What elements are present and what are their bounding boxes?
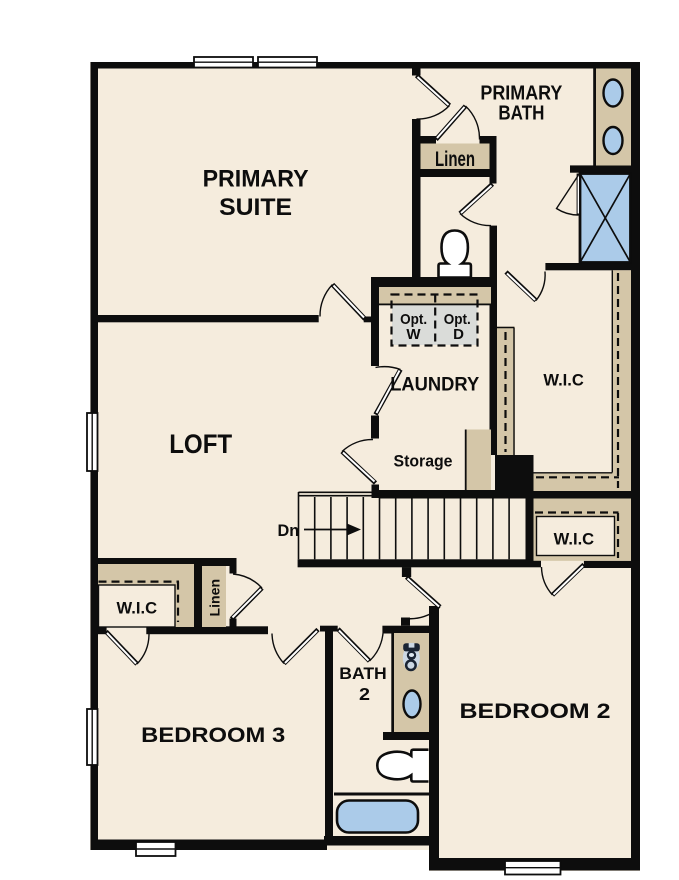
svg-text:W: W [406,326,421,343]
svg-text:BEDROOM 2: BEDROOM 2 [460,700,611,723]
svg-text:2: 2 [359,684,370,704]
svg-text:BATH: BATH [498,103,544,125]
svg-text:LAUNDRY: LAUNDRY [390,375,479,396]
svg-text:W.I.C: W.I.C [117,600,158,618]
svg-text:D: D [453,326,464,343]
svg-text:BATH: BATH [339,664,387,683]
svg-text:Linen: Linen [206,579,222,617]
svg-text:Storage: Storage [394,452,453,471]
svg-text:SUITE: SUITE [219,194,292,221]
svg-text:W.I.C: W.I.C [543,371,584,389]
svg-text:Dn: Dn [278,522,300,540]
svg-text:PRIMARY: PRIMARY [203,166,309,193]
svg-text:PRIMARY: PRIMARY [480,82,563,104]
svg-text:W.I.C: W.I.C [554,530,595,548]
svg-text:Linen: Linen [435,148,475,171]
svg-text:BEDROOM 3: BEDROOM 3 [141,724,285,747]
svg-text:LOFT: LOFT [169,429,232,459]
